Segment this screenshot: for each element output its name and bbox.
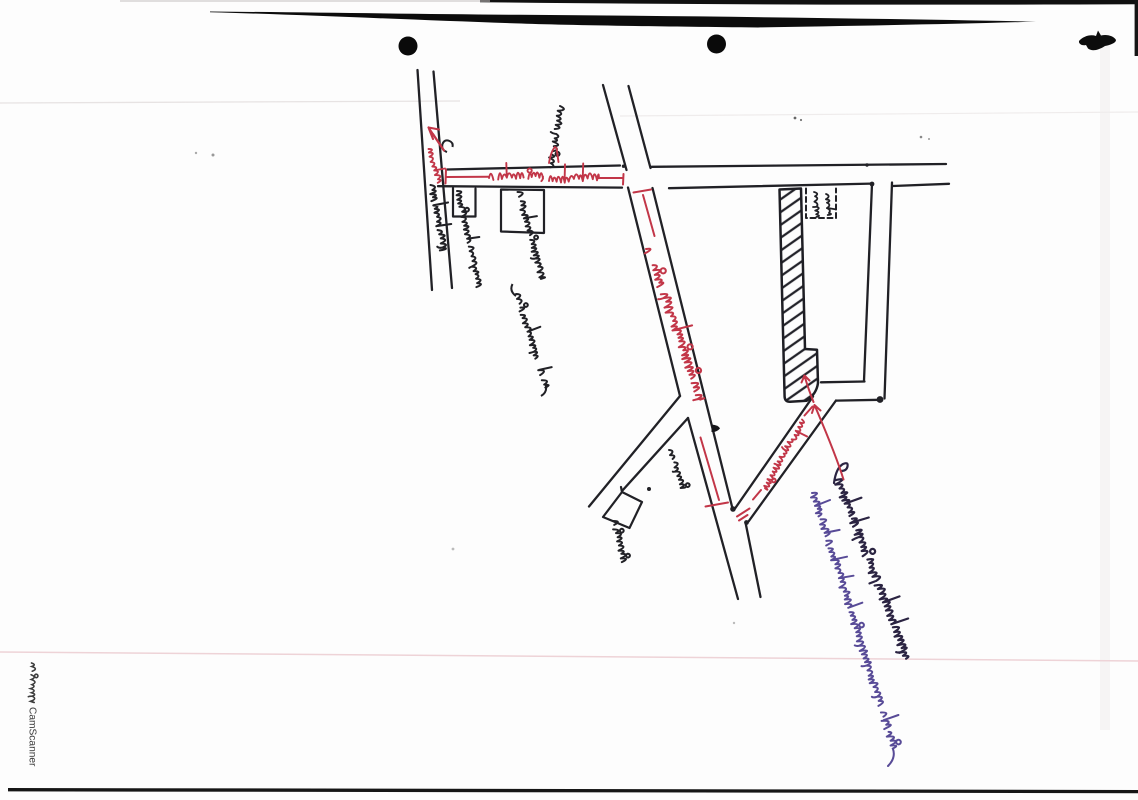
svg-text:CamScanner: CamScanner [27,707,38,767]
